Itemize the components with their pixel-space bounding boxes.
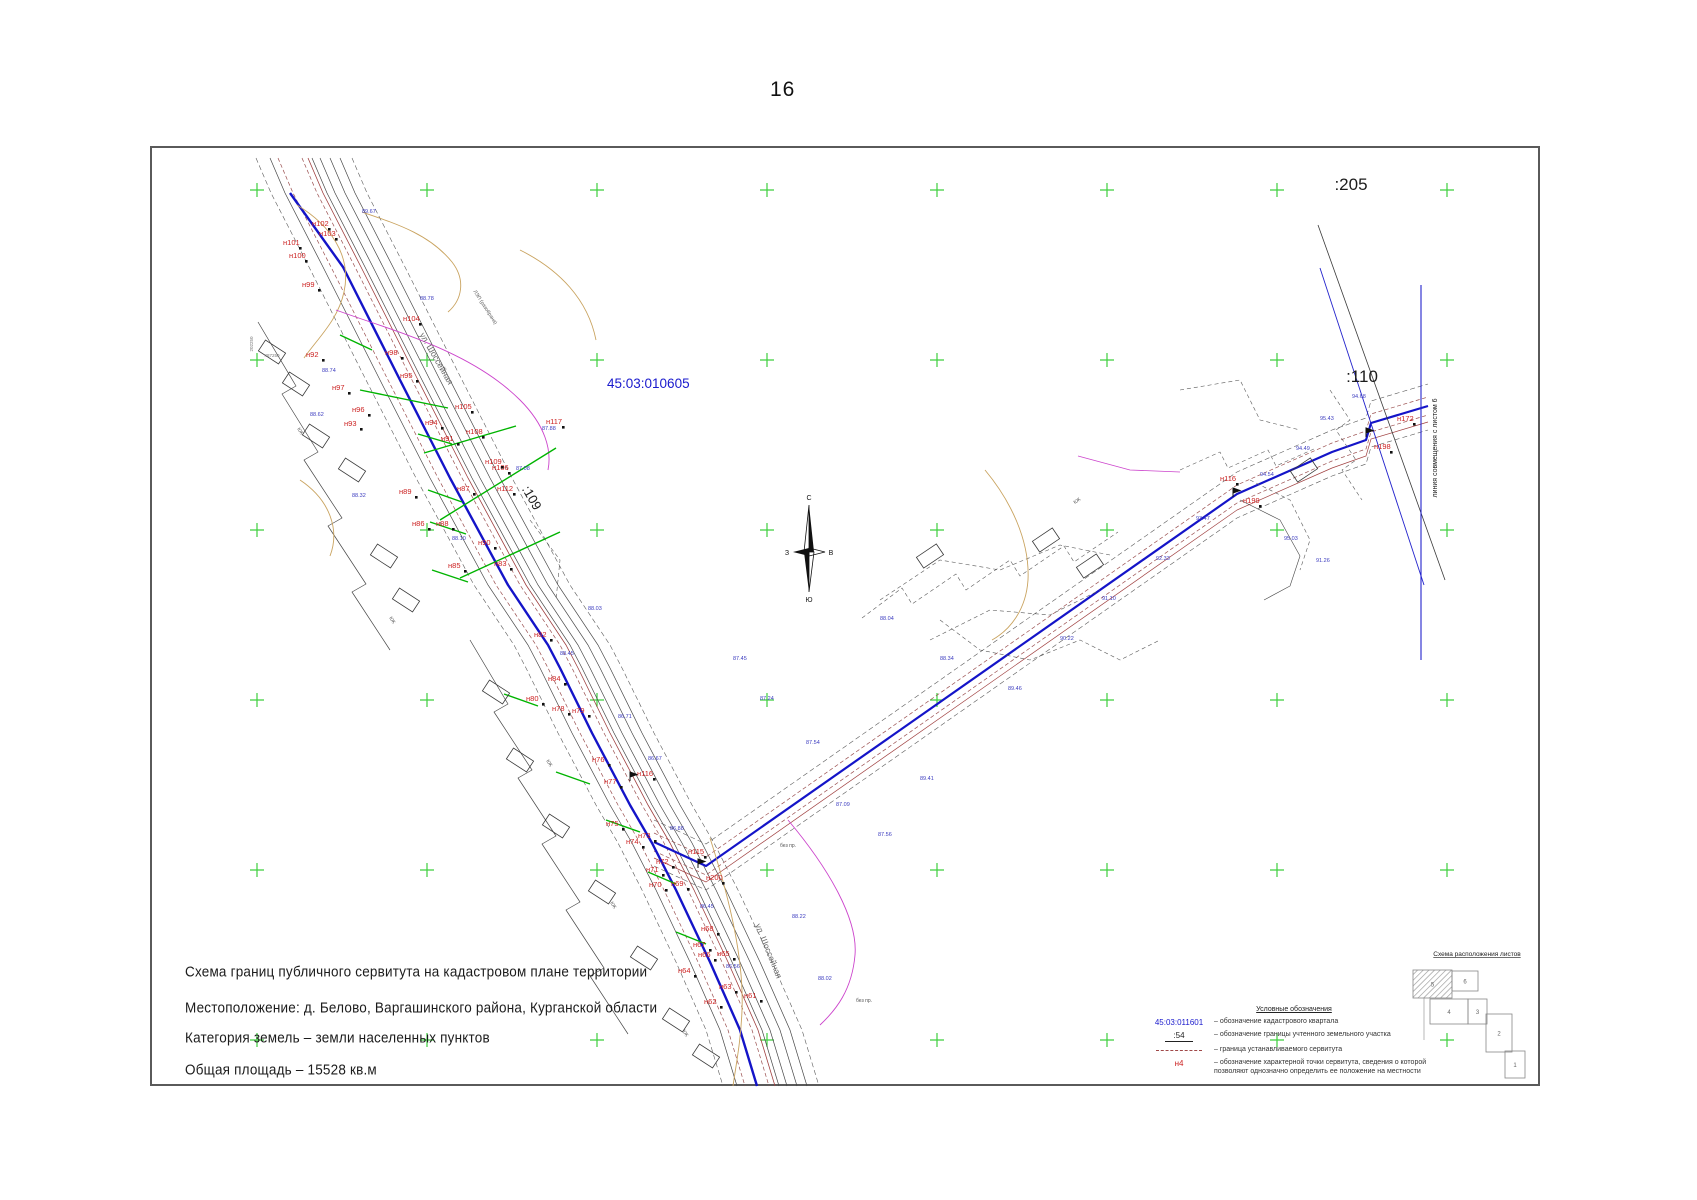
map-line bbox=[336, 310, 549, 470]
servitude-point-label: н102 bbox=[312, 219, 329, 228]
map-annotation: 487250 bbox=[264, 353, 280, 358]
servitude-point-mark bbox=[653, 778, 656, 781]
grid-cross bbox=[590, 523, 604, 537]
legend-item-text: – обозначение характерной точки сервитут… bbox=[1214, 1059, 1442, 1077]
grid-cross bbox=[930, 523, 944, 537]
servitude-point-label: н199 bbox=[1243, 496, 1260, 505]
legend-item-text: – обозначение границы учтенного земельно… bbox=[1214, 1031, 1442, 1040]
map-line bbox=[880, 545, 1110, 600]
servitude-point-label: н172 bbox=[1397, 414, 1414, 423]
servitude-point-mark bbox=[452, 528, 455, 531]
servitude-point-mark bbox=[513, 493, 516, 496]
servitude-point-mark bbox=[428, 528, 431, 531]
right-corridor-line bbox=[654, 422, 1428, 882]
grid-cross bbox=[420, 693, 434, 707]
compass-east-letter: В bbox=[829, 550, 834, 557]
map-annotation: ЛЭП (разобрана) bbox=[472, 289, 499, 326]
legend-item-text: – обозначение кадастрового квартала bbox=[1214, 1018, 1442, 1027]
elevation-label: 89.41 bbox=[920, 776, 934, 782]
street-name-label: ул. Шоссейная bbox=[418, 331, 456, 387]
elevation-label: 88.78 bbox=[420, 296, 434, 302]
servitude-point-label: н94 bbox=[425, 418, 437, 427]
grid-cross bbox=[1440, 523, 1454, 537]
elevation-label: 87.45 bbox=[733, 656, 747, 662]
building-outline bbox=[692, 1044, 719, 1068]
legend: Условные обозначения 45:03:011601 – обоз… bbox=[1150, 1006, 1450, 1080]
servitude-point-label: н115 bbox=[688, 847, 704, 856]
grid-cross bbox=[1270, 863, 1284, 877]
elevation-label: 88.02 bbox=[818, 976, 832, 982]
grid-cross bbox=[1270, 353, 1284, 367]
elevation-label: 88.04 bbox=[880, 616, 894, 622]
grid-cross bbox=[250, 863, 264, 877]
servitude-point-label: н88 bbox=[436, 519, 448, 528]
servitude-point-label: н64 bbox=[678, 966, 690, 975]
servitude-point-mark bbox=[642, 846, 645, 849]
map-annotation: КЖ bbox=[608, 901, 617, 911]
grid-cross bbox=[420, 863, 434, 877]
map-annotation: КЖ bbox=[1073, 496, 1083, 505]
elevation-label: 91.26 bbox=[1316, 558, 1330, 564]
building-outline bbox=[1290, 458, 1317, 482]
elevation-label: 95.03 bbox=[1284, 536, 1298, 542]
servitude-point-mark bbox=[318, 289, 321, 292]
servitude-point-label: н78 bbox=[552, 704, 564, 713]
servitude-point-label: н116 bbox=[1220, 474, 1236, 483]
servitude-point-label: н82 bbox=[534, 630, 546, 639]
compass-south-letter: Ю bbox=[805, 597, 812, 604]
grid-cross bbox=[1440, 183, 1454, 197]
servitude-point-mark bbox=[457, 443, 460, 446]
parcel-number-label: :205 bbox=[1334, 175, 1367, 194]
grid-cross bbox=[760, 353, 774, 367]
servitude-point-mark bbox=[322, 359, 325, 362]
servitude-point-label: н73 bbox=[638, 831, 650, 840]
grid-cross bbox=[1100, 523, 1114, 537]
servitude-point-label: н83 bbox=[494, 559, 506, 568]
elevation-label: 86.88 bbox=[670, 826, 684, 832]
servitude-point-mark bbox=[735, 991, 738, 994]
elevation-label: 94.54 bbox=[1260, 472, 1274, 478]
map-annotation: КЖ bbox=[387, 616, 396, 626]
grid-cross bbox=[760, 863, 774, 877]
green-connector bbox=[432, 570, 468, 582]
location-line: Местоположение: д. Белово, Варгашинского… bbox=[185, 999, 657, 1015]
map-annotation: КЖ bbox=[680, 1029, 689, 1039]
elevation-label: 91.10 bbox=[1102, 596, 1116, 602]
servitude-point-mark bbox=[508, 472, 511, 475]
servitude-point-label: н63 bbox=[719, 982, 731, 991]
grid-cross bbox=[1100, 183, 1114, 197]
cadastral-quarter-symbol: 45:03:011601 bbox=[1155, 1018, 1203, 1027]
servitude-point-mark bbox=[654, 840, 657, 843]
map-line bbox=[520, 250, 596, 340]
servitude-point-label: н89 bbox=[399, 487, 411, 496]
servitude-point-label: н198 bbox=[1374, 442, 1391, 451]
servitude-point-label: н108 bbox=[466, 427, 483, 436]
street-name-label: ул. Шоссейная bbox=[753, 922, 784, 980]
building-outline bbox=[338, 458, 365, 482]
elevation-label: 88.10 bbox=[452, 536, 466, 542]
servitude-point-label: н91 bbox=[441, 434, 453, 443]
map-line bbox=[1330, 390, 1362, 500]
servitude-point-mark bbox=[562, 426, 565, 429]
map-line bbox=[1078, 456, 1180, 472]
map-line bbox=[300, 480, 334, 556]
servitude-point-label: н99 bbox=[302, 280, 314, 289]
servitude-point-label: н96 bbox=[352, 405, 364, 414]
servitude-point-mark bbox=[704, 856, 707, 859]
servitude-point-label: н92 bbox=[306, 350, 318, 359]
servitude-point-mark bbox=[501, 466, 504, 469]
compass-north-letter: С bbox=[806, 495, 811, 502]
elevation-label: 87.24 bbox=[760, 696, 774, 702]
servitude-point-mark bbox=[608, 764, 611, 767]
elevation-label: 87.54 bbox=[806, 740, 820, 746]
servitude-point-label: н75 bbox=[606, 819, 618, 828]
servitude-point-label: н79 bbox=[572, 706, 584, 715]
elevation-label: 94.68 bbox=[1352, 394, 1366, 400]
servitude-point-mark bbox=[299, 247, 302, 250]
compass-icon bbox=[804, 505, 809, 552]
sheet-scheme-title: Схема расположения листов bbox=[1433, 951, 1521, 958]
servitude-point-label: н68 bbox=[701, 924, 713, 933]
building-outline bbox=[1076, 554, 1103, 578]
grid-cross bbox=[1270, 183, 1284, 197]
servitude-point-mark bbox=[441, 427, 444, 430]
green-connector bbox=[360, 390, 448, 408]
grid-cross bbox=[930, 353, 944, 367]
grid-cross bbox=[590, 183, 604, 197]
elevation-label: 89.67 bbox=[362, 209, 376, 215]
servitude-point-label: н101 bbox=[283, 238, 300, 247]
servitude-point-label: н76 bbox=[592, 755, 604, 764]
grid-cross bbox=[760, 523, 774, 537]
grid-cross bbox=[420, 183, 434, 197]
servitude-point-mark bbox=[335, 238, 338, 241]
servitude-point-label: н61 bbox=[744, 991, 756, 1000]
legend-item-parcel: :54 – обозначение границы учтенного земе… bbox=[1150, 1031, 1450, 1042]
map-annotation: без пр. bbox=[780, 843, 796, 849]
map-line bbox=[362, 212, 461, 312]
map-line bbox=[290, 193, 757, 1086]
servitude-point-mark bbox=[473, 493, 476, 496]
grid-cross bbox=[590, 693, 604, 707]
elevation-label: 88.45 bbox=[560, 651, 574, 657]
green-connector bbox=[340, 335, 372, 350]
servitude-point-label: н74 bbox=[626, 837, 638, 846]
servitude-point-mark bbox=[662, 874, 665, 877]
map-line bbox=[1180, 380, 1300, 430]
servitude-point-mark bbox=[471, 411, 474, 414]
right-corridor-line bbox=[654, 384, 1428, 844]
servitude-point-label: н77 bbox=[604, 777, 616, 786]
grid-cross bbox=[590, 863, 604, 877]
sheet-number: 2 bbox=[1497, 1032, 1501, 1038]
map-annotation: КЖ bbox=[544, 759, 553, 769]
grid-cross bbox=[1270, 523, 1284, 537]
servitude-point-mark bbox=[588, 715, 591, 718]
left-corridor-line bbox=[270, 158, 737, 1086]
servitude-point-label: н109 bbox=[485, 457, 502, 466]
map-line bbox=[1318, 225, 1445, 580]
servitude-point-label: н70 bbox=[649, 880, 661, 889]
servitude-point-label: н104 bbox=[403, 314, 420, 323]
building-outline bbox=[282, 372, 309, 396]
grid-cross bbox=[930, 1033, 944, 1047]
servitude-point-label: н69 bbox=[671, 879, 683, 888]
servitude-point-label: н100 bbox=[289, 251, 306, 260]
elevation-label: 88.34 bbox=[940, 656, 954, 662]
grid-cross bbox=[760, 183, 774, 197]
grid-cross bbox=[1100, 1033, 1114, 1047]
servitude-point-label: н97 bbox=[332, 383, 344, 392]
grid-cross bbox=[590, 1033, 604, 1047]
legend-item-point: н4 – обозначение характерной точки серви… bbox=[1150, 1059, 1450, 1077]
map-annotation: без пр. bbox=[856, 998, 872, 1004]
servitude-point-mark bbox=[1236, 483, 1239, 486]
scheme-title: Схема границ публичного сервитута на кад… bbox=[185, 963, 647, 979]
servitude-point-mark bbox=[542, 703, 545, 706]
elevation-label: 86.67 bbox=[648, 756, 662, 762]
parcel-number-label: :110 bbox=[1346, 367, 1378, 386]
sheet-number: 1 bbox=[1513, 1063, 1517, 1069]
elevation-label: 88.74 bbox=[322, 368, 336, 374]
servitude-point-mark bbox=[494, 547, 497, 550]
grid-cross bbox=[1100, 863, 1114, 877]
building-outline bbox=[302, 424, 329, 448]
servitude-point-mark bbox=[665, 889, 668, 892]
servitude-point-mark bbox=[568, 713, 571, 716]
servitude-point-mark bbox=[622, 828, 625, 831]
grid-cross bbox=[250, 693, 264, 707]
elevation-label: 93.47 bbox=[1196, 516, 1210, 522]
servitude-point-label: н85 bbox=[448, 561, 460, 570]
servitude-point-label: н65 bbox=[717, 949, 729, 958]
building-outline bbox=[916, 544, 943, 568]
compass-icon bbox=[804, 552, 809, 592]
sheet-number: 6 bbox=[1463, 980, 1467, 986]
compass-icon bbox=[809, 505, 814, 552]
servitude-point-mark bbox=[694, 975, 697, 978]
survey-flag bbox=[630, 772, 637, 781]
servitude-point-mark bbox=[620, 786, 623, 789]
servitude-point-mark bbox=[510, 568, 513, 571]
map-line bbox=[788, 820, 855, 1025]
servitude-point-label: н112 bbox=[497, 484, 513, 493]
servitude-point-label: н93 bbox=[344, 419, 356, 428]
green-connector bbox=[460, 532, 560, 578]
elevation-label: 87.09 bbox=[836, 802, 850, 808]
grid-cross bbox=[590, 353, 604, 367]
left-corridor-line bbox=[256, 158, 723, 1086]
elevation-label: 86.45 bbox=[700, 904, 714, 910]
servitude-point-mark bbox=[564, 683, 567, 686]
elevation-label: 88.32 bbox=[352, 493, 366, 499]
map-line bbox=[1320, 268, 1424, 585]
grid-cross bbox=[250, 183, 264, 197]
servitude-point-label: н116 bbox=[637, 769, 653, 778]
grid-cross bbox=[930, 863, 944, 877]
elevation-label: 88.03 bbox=[588, 606, 602, 612]
servitude-point-label: н62 bbox=[704, 997, 716, 1006]
left-corridor-line bbox=[278, 158, 745, 1086]
servitude-point-mark bbox=[368, 414, 371, 417]
servitude-point-mark bbox=[1413, 423, 1416, 426]
servitude-point-mark bbox=[722, 882, 725, 885]
sheet-alignment-label: линия совмещения с листом 6 bbox=[1432, 398, 1439, 497]
right-corridor-line bbox=[654, 415, 1428, 875]
servitude-point-label: н80 bbox=[526, 694, 538, 703]
servitude-point-mark bbox=[687, 888, 690, 891]
building-outline bbox=[392, 588, 419, 612]
legend-item-servitude: – граница устанавливаемого сервитута bbox=[1150, 1046, 1450, 1055]
elevation-label: 87.08 bbox=[516, 466, 530, 472]
servitude-point-label: н84 bbox=[548, 674, 560, 683]
servitude-point-label: н87 bbox=[457, 484, 469, 493]
legend-title: Условные обозначения bbox=[1234, 1006, 1354, 1013]
servitude-boundary-symbol bbox=[1156, 1050, 1202, 1051]
servitude-point-mark bbox=[717, 933, 720, 936]
servitude-point-mark bbox=[419, 323, 422, 326]
elevation-label: 88.22 bbox=[792, 914, 806, 920]
servitude-point-mark bbox=[1390, 451, 1393, 454]
elevation-label: 95.43 bbox=[1320, 416, 1334, 422]
grid-cross bbox=[250, 353, 264, 367]
servitude-point-label: н117 bbox=[546, 417, 562, 426]
servitude-point-label: н95 bbox=[400, 371, 412, 380]
compass-west-letter: З bbox=[785, 550, 789, 557]
grid-cross bbox=[1100, 353, 1114, 367]
legend-item-text: – граница устанавливаемого сервитута bbox=[1214, 1046, 1442, 1055]
left-corridor-line bbox=[330, 158, 797, 1086]
left-corridor-line bbox=[312, 158, 779, 1086]
elevation-label: 88.62 bbox=[310, 412, 324, 418]
servitude-point-label: н103 bbox=[319, 229, 336, 238]
compass-icon bbox=[809, 552, 814, 592]
elevation-label: 89.46 bbox=[1008, 686, 1022, 692]
legend-item-quarter: 45:03:011601 – обозначение кадастрового … bbox=[1150, 1018, 1450, 1027]
elevation-label: 90.22 bbox=[1060, 636, 1074, 642]
category-line: Категория земель – земли населенных пунк… bbox=[185, 1029, 490, 1045]
servitude-point-mark bbox=[760, 1000, 763, 1003]
elevation-label: 87.56 bbox=[878, 832, 892, 838]
compass-icon bbox=[793, 548, 809, 556]
map-annotation: 202250 bbox=[249, 336, 254, 352]
servitude-point-mark bbox=[1259, 505, 1262, 508]
right-corridor-line bbox=[654, 397, 1428, 857]
servitude-point-mark bbox=[464, 570, 467, 573]
servitude-point-mark bbox=[348, 392, 351, 395]
parcel-boundary-symbol: :54 bbox=[1165, 1031, 1192, 1042]
servitude-point-mark bbox=[482, 436, 485, 439]
servitude-point-label: н86 bbox=[412, 519, 424, 528]
left-corridor-line bbox=[340, 158, 807, 1086]
servitude-point-mark bbox=[415, 496, 418, 499]
servitude-point-mark bbox=[360, 428, 363, 431]
grid-cross bbox=[1440, 353, 1454, 367]
servitude-point-label: н71 bbox=[646, 865, 658, 874]
map-line bbox=[1240, 500, 1300, 600]
servitude-point-label: н105 bbox=[455, 402, 472, 411]
servitude-point-mark bbox=[714, 959, 717, 962]
total-area-line: Общая площадь – 15528 кв.м bbox=[185, 1061, 377, 1077]
servitude-point-label: н90 bbox=[478, 538, 490, 547]
map-line bbox=[654, 406, 1428, 866]
servitude-point-mark bbox=[672, 866, 675, 869]
servitude-point-mark bbox=[401, 357, 404, 360]
elevation-label: 86.71 bbox=[618, 714, 632, 720]
building-outline bbox=[1032, 528, 1059, 552]
elevation-label: 86.56 bbox=[726, 964, 740, 970]
cadastral-quarter-number: 45:03:010605 bbox=[607, 376, 690, 391]
building-outline bbox=[542, 814, 569, 838]
servitude-point-mark bbox=[733, 958, 736, 961]
servitude-point-label: н98 bbox=[385, 348, 397, 357]
building-outline bbox=[370, 544, 397, 568]
sheet-number: 3 bbox=[1476, 1010, 1480, 1016]
map-line bbox=[985, 470, 1028, 640]
elevation-label: 87.88 bbox=[542, 426, 556, 432]
elevation-label: 94.49 bbox=[1296, 446, 1310, 452]
grid-cross bbox=[1440, 863, 1454, 877]
servitude-point-mark bbox=[305, 260, 308, 263]
map-line bbox=[930, 590, 1100, 640]
servitude-point-mark bbox=[550, 639, 553, 642]
green-connector bbox=[556, 772, 590, 784]
grid-cross bbox=[1100, 693, 1114, 707]
servitude-point-label: н66 bbox=[698, 950, 710, 959]
elevation-label: 92.33 bbox=[1156, 556, 1170, 562]
servitude-point-mark bbox=[416, 380, 419, 383]
grid-cross bbox=[930, 183, 944, 197]
building-outline bbox=[588, 880, 615, 904]
servitude-point-label: н200 bbox=[706, 873, 723, 882]
document-page: 16 н102н103н101н100н99н92н97н96н93н98н95… bbox=[0, 0, 1697, 1200]
characteristic-point-symbol: н4 bbox=[1175, 1059, 1184, 1068]
grid-cross bbox=[1270, 693, 1284, 707]
grid-cross bbox=[1440, 693, 1454, 707]
servitude-point-mark bbox=[720, 1006, 723, 1009]
servitude-point-label: н67 bbox=[693, 940, 705, 949]
grid-cross bbox=[250, 523, 264, 537]
